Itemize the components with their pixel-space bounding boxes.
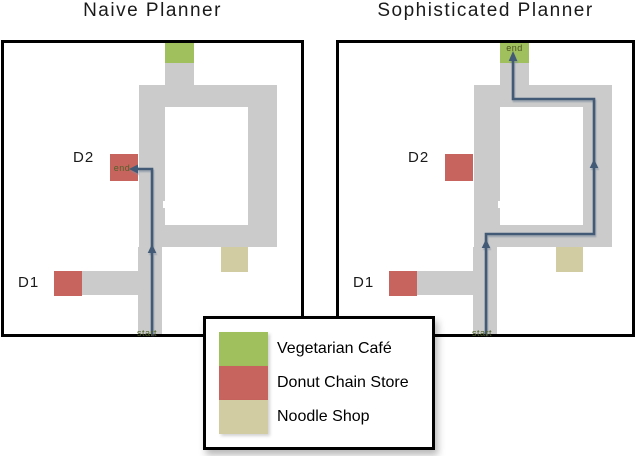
start-label: start bbox=[132, 329, 162, 338]
naive-panel-title: Naive Planner bbox=[1, 0, 304, 22]
donut-color-swatch bbox=[219, 366, 268, 400]
sophisticated-path bbox=[339, 43, 632, 334]
legend: Vegetarian Café Donut Chain Store Noodle… bbox=[203, 316, 435, 450]
figure-canvas: Naive Planner Sophisticated Planner end … bbox=[0, 0, 636, 456]
mid-arrowhead-2 bbox=[590, 159, 599, 168]
end-arrowhead bbox=[509, 51, 518, 61]
sophisticated-map-area: end D2 D1 start bbox=[339, 43, 632, 334]
legend-item-vegetarian-cafe: Vegetarian Café bbox=[219, 332, 432, 366]
start-label: start bbox=[467, 329, 497, 338]
legend-label: Donut Chain Store bbox=[277, 374, 409, 392]
legend-label: Vegetarian Café bbox=[277, 340, 392, 358]
sophisticated-planner-map: end D2 D1 start bbox=[336, 40, 635, 337]
end-arrowhead bbox=[129, 165, 138, 174]
legend-item-donut-chain-store: Donut Chain Store bbox=[219, 366, 432, 400]
naive-path bbox=[4, 43, 300, 334]
path-line bbox=[486, 58, 594, 334]
noodle-color-swatch bbox=[219, 400, 268, 434]
naive-map-area: end D2 D1 start bbox=[4, 43, 301, 334]
naive-planner-map: end D2 D1 start bbox=[1, 40, 304, 337]
sophisticated-panel-title: Sophisticated Planner bbox=[336, 0, 635, 22]
legend-item-noodle-shop: Noodle Shop bbox=[219, 400, 432, 434]
legend-label: Noodle Shop bbox=[277, 408, 370, 426]
mid-arrowhead bbox=[482, 239, 491, 248]
cafe-color-swatch bbox=[219, 332, 268, 366]
mid-arrowhead bbox=[148, 244, 157, 253]
